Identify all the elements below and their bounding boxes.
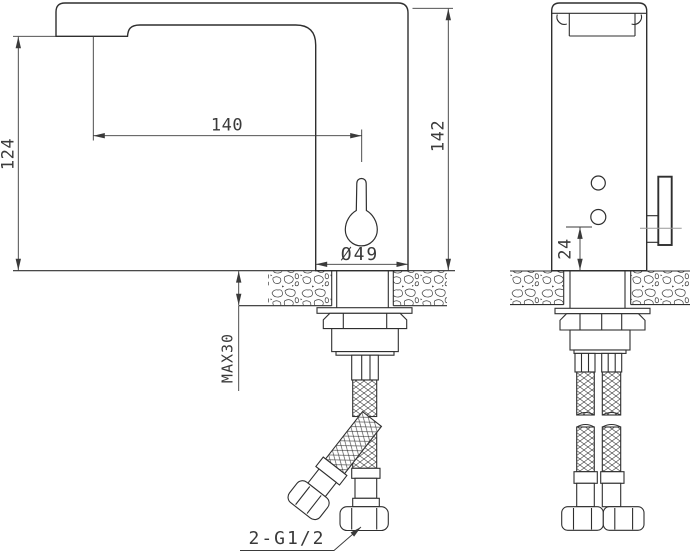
side-hose-connector-left [575,353,595,372]
side-mounting-hardware [555,308,650,372]
dimension-124 [13,36,56,270]
front-hose-nut [340,507,388,531]
side-supply-hoses [562,372,644,530]
dimension-label-24: 24 [558,238,575,259]
sensor-circle-lower [591,210,606,225]
front-view [13,3,455,531]
side-view [510,3,690,530]
side-washer [555,308,650,313]
dimension-label-dia49: Ø49 [341,246,380,264]
thread-callout-label: 2-G1/2 [248,530,325,548]
dimension-label-max30: MAX30 [221,333,236,383]
technical-drawing: 124 140 142 Ø49 MAX30 24 2-G1/2 [0,0,694,554]
side-shank-body [570,330,630,350]
side-locknut [560,314,645,330]
dimension-label-124: 124 [1,138,18,170]
drawing-canvas [0,0,694,554]
side-hose-connector-right [602,353,622,372]
front-counter-section [13,271,455,308]
front-washer [317,308,412,314]
dimension-label-140: 140 [211,118,243,135]
front-mounting-hardware [317,308,412,380]
dimension-label-142: 142 [431,120,448,152]
sensor-circle-upper [591,176,605,190]
front-locknut [323,313,406,328]
front-hose-connector [352,355,379,380]
faucet-side-outline [552,3,647,271]
faucet-front-outline [56,3,408,271]
side-hose-nut-right [603,507,644,531]
side-hose-nut-left [562,507,604,531]
front-counter-hatch [268,271,447,305]
side-counter-hatch [510,271,690,304]
front-shank-body [332,329,399,352]
